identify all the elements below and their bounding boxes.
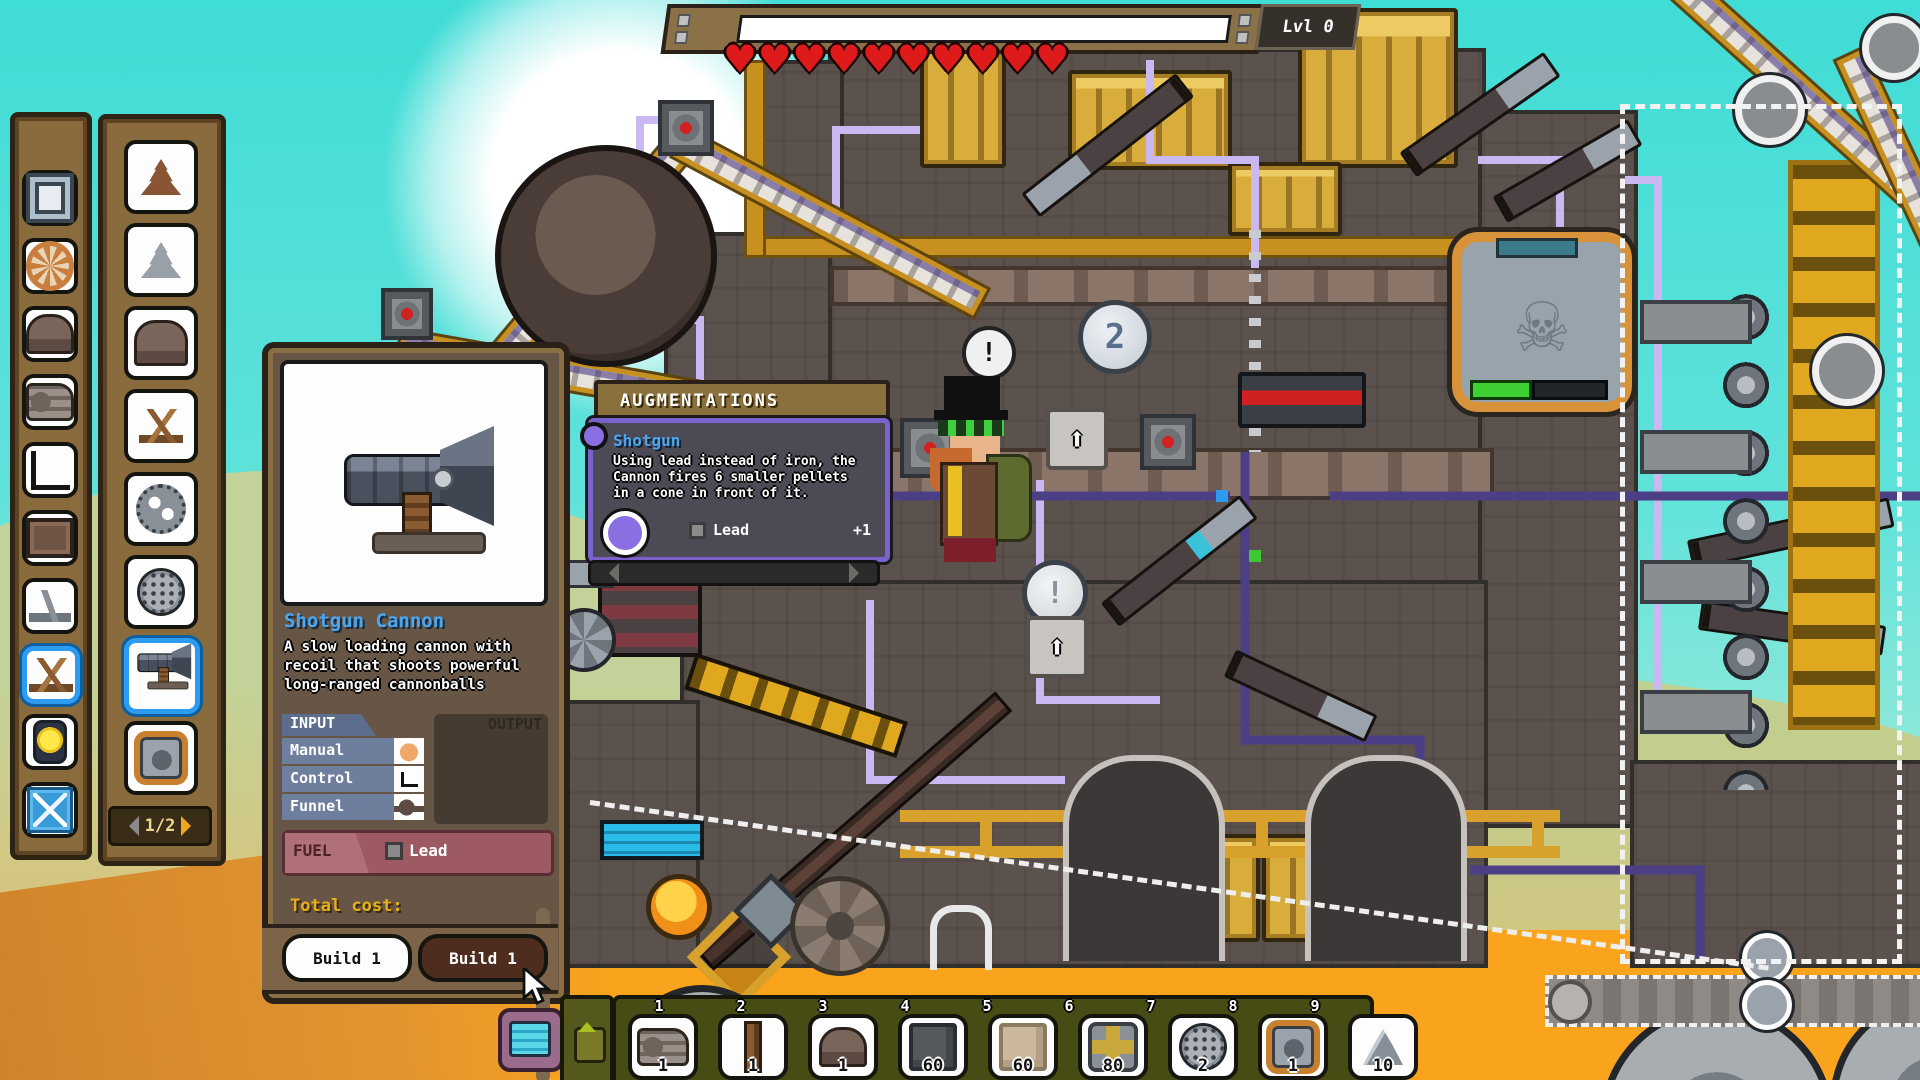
conveyor-end-cap xyxy=(1548,980,1592,1024)
slot-key: 6 xyxy=(1038,997,1100,1015)
slot-key: 7 xyxy=(1120,997,1182,1015)
pagination-label: 1/2 xyxy=(145,816,176,836)
augmentation-cost-item: Lead xyxy=(713,521,749,539)
hotbar-slot-9[interactable]: 10 xyxy=(1348,1014,1418,1080)
red-stripe-module xyxy=(1238,372,1366,428)
cannon-muzzle xyxy=(172,643,191,679)
input-row-label: Control xyxy=(282,766,394,792)
rivet xyxy=(674,31,689,44)
heart-icon: ♥ xyxy=(1004,36,1032,82)
arm-joint xyxy=(658,100,714,156)
toolbar-item-frame-block[interactable] xyxy=(22,170,78,226)
slot-key: 9 xyxy=(1284,997,1346,1015)
input-row-control: Control xyxy=(282,766,430,792)
armored-dome-icon xyxy=(134,320,188,366)
level-badge: Lvl 0 xyxy=(1255,4,1361,50)
cannon-barrel xyxy=(137,653,176,672)
arrow-up-glyph: ⬆ xyxy=(1068,422,1086,457)
item-title: Shotgun Cannon xyxy=(284,610,444,632)
cannon-base xyxy=(147,681,188,689)
toolbar-pagination: 1/2 xyxy=(108,806,212,846)
selection-box-dashed xyxy=(1620,104,1902,964)
slot-count: 2 xyxy=(1172,1056,1234,1076)
console-screen xyxy=(509,1021,551,1057)
rivet xyxy=(676,14,691,27)
slot-key: 1 xyxy=(628,997,690,1015)
catapult-arm-icon xyxy=(29,590,71,622)
arm-joint xyxy=(381,288,433,340)
build-details-panel: Shotgun Cannon A slow loading cannon wit… xyxy=(262,342,570,1004)
skull-icon: ☠ xyxy=(1517,273,1568,371)
output-header-label: OUTPUT xyxy=(488,715,542,733)
player-character xyxy=(928,376,1028,562)
scroll-left-arrow[interactable] xyxy=(599,563,619,583)
augmentation-description: Using lead instead of iron, the Cannon f… xyxy=(613,454,871,502)
tow-handle xyxy=(930,905,992,970)
character-hat-brim xyxy=(934,410,1008,420)
linkage-glyph xyxy=(401,772,418,787)
hull-dome-icon xyxy=(26,314,74,354)
fuel-bar: FUEL Lead xyxy=(282,830,554,876)
hotbar-slot-3[interactable]: 1 xyxy=(808,1014,878,1080)
heart-icon: ♥ xyxy=(795,36,823,82)
toolbar-item-wooden-wheel[interactable] xyxy=(22,238,78,294)
character-hat xyxy=(944,376,1000,412)
build-button-qty: 1 xyxy=(371,949,381,968)
build-item-stone-mound[interactable] xyxy=(124,223,198,297)
spike-ball-icon xyxy=(140,571,182,613)
input-row-funnel: Funnel xyxy=(282,794,430,820)
page-next-arrow[interactable] xyxy=(181,816,201,836)
cyan-screen-module xyxy=(600,820,704,860)
augmentation-cost-delta: +1 xyxy=(853,521,871,539)
character-goggles xyxy=(938,420,1004,436)
build-item-dirt-mound[interactable] xyxy=(124,140,198,214)
drill-wheel xyxy=(495,145,717,367)
alert-label: ! xyxy=(981,338,997,368)
slot-count: 1 xyxy=(722,1056,784,1076)
slot-count: 60 xyxy=(992,1056,1054,1076)
heart-icon: ♥ xyxy=(1038,36,1066,82)
gear-wheel-icon xyxy=(136,484,186,534)
slot-key: 2 xyxy=(710,997,772,1015)
augmentation-pip xyxy=(580,422,608,450)
augmentations-title: AUGMENTATIONS xyxy=(620,391,779,411)
ballista-icon xyxy=(29,658,73,692)
conveyor-roller xyxy=(1742,980,1792,1030)
slot-count: 1 xyxy=(1262,1056,1324,1076)
augmentation-orb-icon xyxy=(603,511,647,555)
augmentation-scrollbar[interactable] xyxy=(588,560,880,586)
hotbar-slots: 1 1 1 60 60 80 2 1 10 xyxy=(628,1014,1418,1080)
game-screen: 2 ! ! ⬆ ⬆ ☠ xyxy=(0,0,1920,1080)
toolbar-item-engine[interactable] xyxy=(22,374,78,430)
control-rod-icon xyxy=(31,451,70,490)
input-row-label: Manual xyxy=(282,738,394,764)
build-item-armored-dome[interactable] xyxy=(124,306,198,380)
blueprint-icon xyxy=(27,787,73,833)
toolbar-item-hull-dome[interactable] xyxy=(22,306,78,362)
backpack-icon xyxy=(574,1027,606,1063)
build-item-cannonball-crate[interactable] xyxy=(124,721,198,795)
fuel-header-label: FUEL xyxy=(293,841,332,860)
alert-circle: ! xyxy=(962,326,1016,380)
wooden-wheel-icon xyxy=(26,241,74,291)
scroll-right-arrow[interactable] xyxy=(849,563,869,583)
skull-hatch-vent xyxy=(1496,238,1578,258)
frame-block-icon xyxy=(26,173,74,223)
hotbar-slot-5[interactable]: 60 xyxy=(988,1014,1058,1080)
output-section: OUTPUT xyxy=(434,714,548,824)
augmentation-cost-row: Lead xyxy=(689,521,749,539)
heart-icon: ♥ xyxy=(900,36,928,82)
hotbar-slot-2[interactable]: 1 xyxy=(718,1014,788,1080)
fuel-item-row: Lead xyxy=(385,841,448,860)
build-item-gear-wheel[interactable] xyxy=(124,472,198,546)
ballista-turret-icon xyxy=(139,409,183,443)
dirt-mound-icon xyxy=(140,159,182,195)
fuel-header: FUEL xyxy=(285,833,369,873)
cannon-base xyxy=(372,532,486,554)
toolbar-item-control-rod[interactable] xyxy=(22,442,78,498)
character-vest xyxy=(948,466,962,536)
flywheel-gear xyxy=(790,876,890,976)
cannon-sprite xyxy=(332,414,502,554)
page-prev-arrow[interactable] xyxy=(119,816,139,836)
slot-count: 10 xyxy=(1352,1056,1414,1076)
build-item-spike-ball[interactable] xyxy=(124,555,198,629)
toolbar-item-blueprint[interactable] xyxy=(22,782,78,838)
sphere-label: 2 xyxy=(1105,317,1125,357)
character-pants xyxy=(944,538,996,562)
build-button-primary[interactable]: Build 1 xyxy=(282,934,412,982)
furnace-orb xyxy=(646,874,712,940)
slot-count: 60 xyxy=(902,1056,964,1076)
toolbar-item-lantern[interactable] xyxy=(22,714,78,770)
input-header-label: INPUT xyxy=(290,714,335,732)
heart-icon: ♥ xyxy=(726,36,754,82)
hull-tunnel xyxy=(1305,755,1467,961)
input-section: INPUT Manual Control Funnel xyxy=(282,714,430,824)
fuel-item-label: Lead xyxy=(409,841,448,860)
augmentations-panel: AUGMENTATIONS Shotgun Using lead instead… xyxy=(588,380,888,586)
alert-sphere-label: ! xyxy=(1046,576,1064,611)
backpack-slot[interactable] xyxy=(560,995,614,1080)
input-row-manual: Manual xyxy=(282,738,430,764)
slot-count: 1 xyxy=(632,1056,694,1076)
slot-count: 80 xyxy=(1082,1056,1144,1076)
build-button-qty: 1 xyxy=(507,949,517,968)
hotbar-slot-7[interactable]: 2 xyxy=(1168,1014,1238,1080)
dark-charge-bar xyxy=(1532,380,1608,400)
hotbar-slot-6[interactable]: 80 xyxy=(1078,1014,1148,1080)
hand-icon xyxy=(394,738,424,764)
chat-console-icon[interactable] xyxy=(498,1008,564,1072)
build-item-ballista-turret[interactable] xyxy=(124,389,198,463)
build-button-label: Build xyxy=(449,949,497,968)
heart-icon: ♥ xyxy=(969,36,997,82)
slot-key: 4 xyxy=(874,997,936,1015)
engine-icon xyxy=(26,383,74,421)
control-linkage-icon xyxy=(394,766,424,792)
augmentation-name: Shotgun xyxy=(613,431,885,450)
toolbar-item-ballista[interactable] xyxy=(22,646,80,704)
lead-resource-icon xyxy=(385,842,403,860)
heart-icon: ♥ xyxy=(934,36,962,82)
item-description: A slow loading cannon with recoil that s… xyxy=(284,638,548,695)
level-label: Lvl 0 xyxy=(1281,17,1335,37)
item-preview-box xyxy=(280,360,548,606)
backpack-flap-icon xyxy=(578,1013,596,1032)
heart-icon: ♥ xyxy=(830,36,858,82)
lantern-icon xyxy=(33,720,67,764)
slot-count: 1 xyxy=(812,1056,874,1076)
hearts-row: ♥♥♥♥♥♥♥♥♥♥ xyxy=(726,36,1066,82)
green-charge-bar xyxy=(1470,380,1532,400)
hotbar-keys: 1 2 3 4 5 6 7 8 9 xyxy=(628,997,1368,1015)
hotbar-slot-1[interactable]: 1 xyxy=(628,1014,698,1080)
shotgun-cannon-icon xyxy=(133,639,194,686)
conveyor-track xyxy=(1545,975,1920,1027)
stone-mound-icon xyxy=(140,242,182,278)
rivet xyxy=(1235,31,1250,44)
arrow-up-glyph: ⬆ xyxy=(1048,630,1066,665)
display-sign-icon xyxy=(26,518,74,558)
hotbar-slot-4[interactable]: 60 xyxy=(898,1014,968,1080)
build-item-shotgun-cannon[interactable] xyxy=(124,638,200,714)
arm-joint xyxy=(1140,414,1196,470)
slot-key: 3 xyxy=(792,997,854,1015)
heart-icon: ♥ xyxy=(865,36,893,82)
input-row-label: Funnel xyxy=(282,794,394,820)
slot-key: 8 xyxy=(1202,997,1264,1015)
augmentation-card: Shotgun Using lead instead of iron, the … xyxy=(588,418,890,562)
cannonball-crate-icon xyxy=(134,731,188,785)
toolbar-item-catapult-arm[interactable] xyxy=(22,578,78,634)
augmentations-header: AUGMENTATIONS xyxy=(594,380,890,422)
arrow-plate: ⬆ xyxy=(1026,616,1088,678)
total-cost-label: Total cost: xyxy=(290,896,403,916)
pulley-wheel xyxy=(1862,16,1920,80)
lead-resource-icon xyxy=(689,522,706,539)
hotbar-slot-8[interactable]: 1 xyxy=(1258,1014,1328,1080)
arrow-plate: ⬆ xyxy=(1046,408,1108,470)
hull-tunnel xyxy=(1063,755,1225,961)
toolbar-item-display-sign[interactable] xyxy=(22,510,78,566)
mouse-cursor xyxy=(522,968,556,1008)
funnel-icon xyxy=(394,794,424,820)
build-button-label: Build xyxy=(313,949,361,968)
rivet xyxy=(1237,14,1252,27)
slot-key: 5 xyxy=(956,997,1018,1015)
cannon-pivot xyxy=(432,468,454,490)
input-header: INPUT xyxy=(282,714,376,736)
number-sphere: 2 xyxy=(1078,300,1152,374)
heart-icon: ♥ xyxy=(761,36,789,82)
